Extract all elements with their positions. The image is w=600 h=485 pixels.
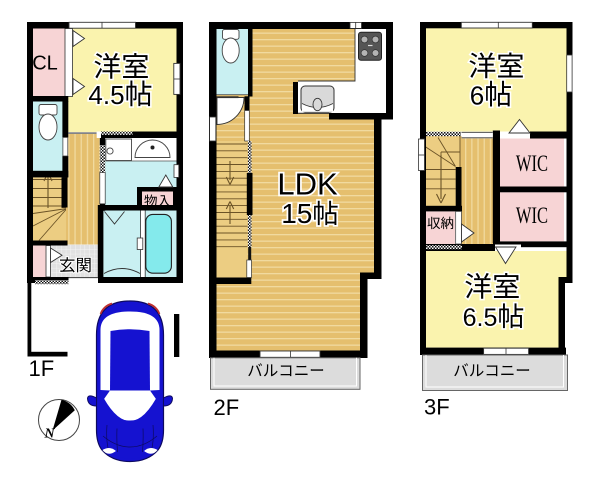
- svg-text:1F: 1F: [29, 356, 55, 381]
- svg-text:WIC: WIC: [516, 151, 548, 176]
- svg-text:6: 6: [470, 80, 484, 110]
- svg-text:15: 15: [281, 198, 312, 229]
- svg-text:6.5: 6.5: [463, 304, 498, 332]
- svg-text:4.5: 4.5: [88, 80, 124, 110]
- svg-text:CL: CL: [32, 53, 58, 75]
- svg-text:2F: 2F: [214, 395, 240, 420]
- svg-text:N: N: [44, 427, 56, 442]
- svg-text:WIC: WIC: [516, 203, 548, 228]
- svg-text:LDK: LDK: [277, 167, 338, 202]
- svg-text:3F: 3F: [424, 395, 450, 420]
